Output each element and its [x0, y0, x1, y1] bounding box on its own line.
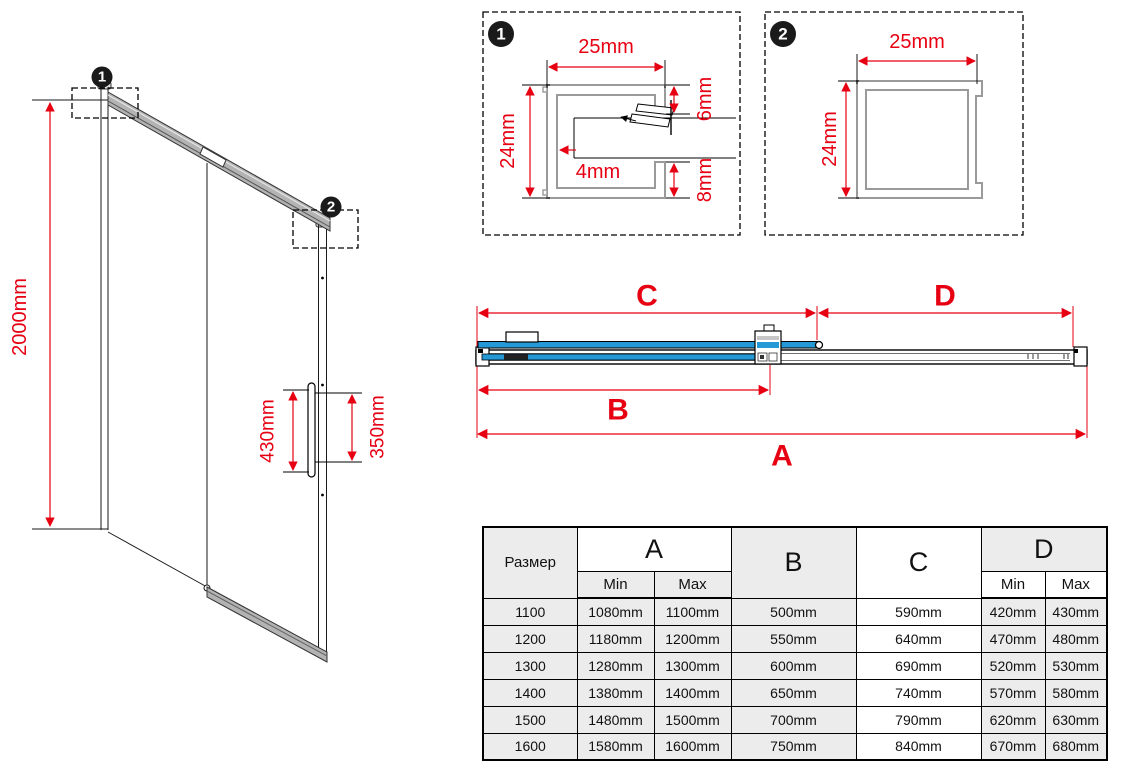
callout-1-number: 1 — [98, 69, 106, 86]
d-max-cell: 580mm — [1045, 679, 1107, 706]
a-max-cell: 1600mm — [654, 733, 731, 760]
dimension-c-label: C — [636, 280, 658, 313]
table-row: 1600 1580mm 1600mm 750mm 840mm 670mm 680… — [483, 733, 1107, 760]
detail-2-profile-section: 2 25mm 24mm — [760, 8, 1028, 240]
detail-1-top-lip-label: 6mm — [694, 77, 716, 121]
detail-1-glass-gap-dimension: 4mm — [560, 150, 620, 183]
c-cell: 740mm — [856, 679, 981, 706]
dimension-b-label: B — [607, 394, 629, 427]
detail-1-height-dimension: 24mm — [497, 85, 550, 198]
detail-1-top-lip-dimension: 6mm — [666, 77, 716, 121]
d-max-cell: 530mm — [1045, 652, 1107, 679]
table-header-c: C — [856, 527, 981, 598]
a-max-cell: 1500mm — [654, 706, 731, 733]
fixed-glass-panel — [482, 354, 762, 360]
detail-1-profile-section: 1 25mm — [478, 8, 746, 240]
d-min-cell: 620mm — [981, 706, 1045, 733]
extension-lines — [477, 306, 1087, 438]
detail-1-bottom-lip-label: 8mm — [694, 158, 716, 202]
d-min-cell: 470mm — [981, 625, 1045, 652]
dimension-d: D — [819, 280, 1071, 314]
detail-2-number: 2 — [778, 25, 787, 44]
table-row: 1500 1480mm 1500mm 700mm 790mm 620mm 630… — [483, 706, 1107, 733]
table-row: 1300 1280mm 1300mm 600mm 690mm 520mm 530… — [483, 652, 1107, 679]
b-cell: 700mm — [731, 706, 856, 733]
c-cell: 790mm — [856, 706, 981, 733]
a-min-cell: 1380mm — [577, 679, 654, 706]
a-min-cell: 1580mm — [577, 733, 654, 760]
size-cell: 1500 — [483, 706, 577, 733]
size-cell: 1100 — [483, 598, 577, 625]
dimension-a-label: A — [771, 440, 793, 473]
table-header-b: B — [731, 527, 856, 598]
detail-1-bottom-lip-dimension: 8mm — [666, 158, 716, 202]
d-max-cell: 430mm — [1045, 598, 1107, 625]
door-isometric-drawing: 2000mm 430mm 350mm 1 2 — [0, 55, 440, 695]
dimension-a: A — [478, 434, 1085, 473]
d-min-cell: 520mm — [981, 652, 1045, 679]
handle-holes-label: 350mm — [368, 395, 389, 458]
table-header-d-min: Min — [981, 571, 1045, 598]
b-cell: 550mm — [731, 625, 856, 652]
detail-1-width-label: 25mm — [578, 36, 634, 58]
size-cell: 1200 — [483, 625, 577, 652]
size-table: Размер A B C D Min Max Min Max 1100 1080… — [482, 526, 1108, 761]
callout-2-number: 2 — [327, 199, 335, 216]
a-max-cell: 1300mm — [654, 652, 731, 679]
table-header-d: D — [981, 527, 1107, 571]
c-cell: 590mm — [856, 598, 981, 625]
detail-1-number: 1 — [496, 25, 505, 44]
dimension-c: C — [479, 280, 815, 314]
d-min-cell: 420mm — [981, 598, 1045, 625]
detail-1-glass-gap-label: 4mm — [576, 161, 620, 183]
a-max-cell: 1200mm — [654, 625, 731, 652]
bottom-rail — [207, 587, 327, 662]
b-cell: 600mm — [731, 652, 856, 679]
b-cell: 650mm — [731, 679, 856, 706]
dimension-b: B — [479, 390, 768, 427]
handle-length-dimension: 430mm — [258, 390, 310, 472]
a-max-cell: 1400mm — [654, 679, 731, 706]
d-min-cell: 670mm — [981, 733, 1045, 760]
a-max-cell: 1100mm — [654, 598, 731, 625]
detail-2-width-label: 25mm — [889, 31, 945, 53]
c-cell: 690mm — [856, 652, 981, 679]
a-min-cell: 1480mm — [577, 706, 654, 733]
table-header-a-max: Max — [654, 571, 731, 598]
d-max-cell: 680mm — [1045, 733, 1107, 760]
c-cell: 640mm — [856, 625, 981, 652]
table-row: 1100 1080mm 1100mm 500mm 590mm 420mm 430… — [483, 598, 1107, 625]
table-row: 1200 1180mm 1200mm 550mm 640mm 470mm 480… — [483, 625, 1107, 652]
a-min-cell: 1180mm — [577, 625, 654, 652]
d-min-cell: 570mm — [981, 679, 1045, 706]
door-handle — [308, 383, 315, 477]
table-header-size: Размер — [483, 527, 577, 598]
detail-1-width-dimension: 25mm — [547, 36, 665, 88]
door-frame — [32, 82, 329, 660]
detail-2-height-dimension: 24mm — [819, 81, 859, 198]
c-cell: 840mm — [856, 733, 981, 760]
table-header-a: A — [577, 527, 731, 571]
detail-1-height-label: 24mm — [497, 113, 519, 169]
roller-clamp — [755, 325, 781, 364]
handle-length-label: 430mm — [258, 399, 279, 462]
dimension-d-label: D — [934, 280, 956, 313]
table-header-d-max: Max — [1045, 571, 1107, 598]
size-cell: 1300 — [483, 652, 577, 679]
b-cell: 750mm — [731, 733, 856, 760]
spec-sheet-page: 2000mm 430mm 350mm 1 2 — [0, 0, 1125, 776]
track-section-view: C D B A — [458, 266, 1125, 486]
size-cell: 1600 — [483, 733, 577, 760]
a-min-cell: 1280mm — [577, 652, 654, 679]
square-profile-outline — [857, 81, 982, 198]
table-row: 1400 1380mm 1400mm 650mm 740mm 570mm 580… — [483, 679, 1107, 706]
height-dim-label: 2000mm — [9, 278, 31, 356]
d-max-cell: 630mm — [1045, 706, 1107, 733]
height-dimension: 2000mm — [9, 103, 50, 526]
detail-2-height-label: 24mm — [819, 111, 841, 167]
b-cell: 500mm — [731, 598, 856, 625]
table-header-a-min: Min — [577, 571, 654, 598]
detail-2-width-dimension: 25mm — [857, 31, 977, 84]
d-max-cell: 480mm — [1045, 625, 1107, 652]
size-cell: 1400 — [483, 679, 577, 706]
a-min-cell: 1080mm — [577, 598, 654, 625]
